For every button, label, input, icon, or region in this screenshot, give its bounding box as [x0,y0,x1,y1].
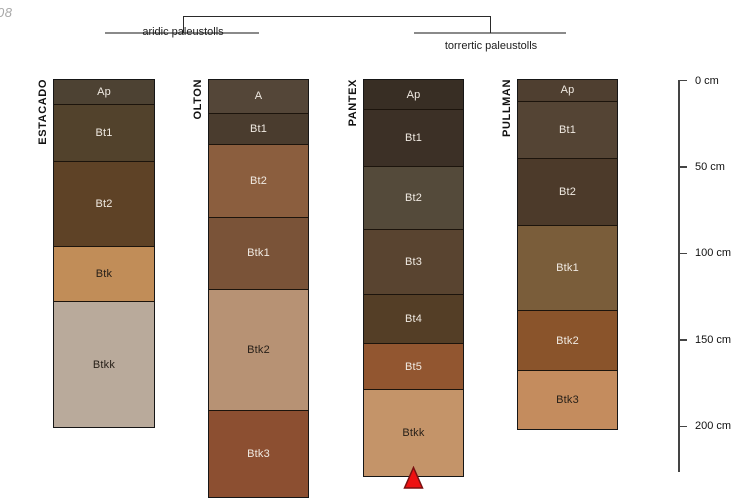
horizon-label: Btk1 [247,247,270,259]
depth-axis-line [678,80,680,472]
profile-column-pantex: ApBt1Bt2Bt3Bt4Bt5Btkk [363,79,464,477]
marker-triangle-shape [405,468,423,489]
horizon-label: Bt2 [95,198,112,210]
horizon-pullman-ap: Ap [518,80,617,101]
horizon-pantex-bt4: Bt4 [364,294,463,342]
horizon-olton-btk2: Btk2 [209,289,308,410]
horizon-label: Ap [407,89,421,101]
horizon-label: Bt5 [405,361,422,373]
horizon-pantex-bt1: Bt1 [364,109,463,166]
horizon-olton-btk1: Btk1 [209,217,308,290]
horizon-estacado-btk: Btk [54,246,154,301]
profile-name-olton: OLTON [192,79,204,119]
horizon-pantex-bt3: Bt3 [364,229,463,295]
horizon-olton-btk3: Btk3 [209,410,308,496]
horizon-label: Bt2 [405,192,422,204]
soil-profile-diagram: 08 aridic paleustolls torrertic paleusto… [0,0,750,500]
horizon-label: Bt1 [559,124,576,136]
horizon-label: Bt4 [405,313,422,325]
horizon-pullman-btk1: Btk1 [518,225,617,310]
horizon-label: Bt2 [559,186,576,198]
horizon-pantex-bt2: Bt2 [364,166,463,228]
group-label-aridic: aridic paleustolls [141,26,225,38]
horizon-pullman-btk3: Btk3 [518,370,617,429]
depth-tick-label: 200 cm [695,419,750,433]
horizon-olton-bt1: Bt1 [209,113,308,144]
horizon-estacado-ap: Ap [54,80,154,104]
bracket-top-line [183,16,491,17]
group-label-torrertic: torrertic paleustolls [440,40,542,52]
depth-tick-label: 100 cm [695,246,750,260]
horizon-pullman-bt2: Bt2 [518,158,617,225]
depth-tick-label: 0 cm [695,74,750,88]
profile-name-pantex: PANTEX [347,79,359,126]
profile-column-olton: ABt1Bt2Btk1Btk2Btk3 [208,79,309,498]
horizon-estacado-bt2: Bt2 [54,161,154,246]
depth-tick [678,339,687,341]
horizon-label: Btk2 [556,335,579,347]
horizon-label: Bt1 [95,127,112,139]
depth-tick-label: 50 cm [695,160,750,174]
horizon-label: Ap [561,84,575,96]
profile-name-estacado: ESTACADO [37,79,49,145]
horizon-pullman-bt1: Bt1 [518,101,617,158]
horizon-label: Bt3 [405,256,422,268]
horizon-label: Bt1 [250,123,267,135]
profile-name-pullman: PULLMAN [501,79,513,137]
depth-tick [678,80,687,82]
horizon-label: A [255,90,263,102]
depth-tick [678,166,687,168]
horizon-pantex-btkk: Btkk [364,389,463,475]
horizon-olton-a: A [209,80,308,113]
horizon-estacado-btkk: Btkk [54,301,154,427]
horizon-label: Btk2 [247,344,270,356]
horizon-pantex-ap: Ap [364,80,463,109]
depth-tick [678,426,687,428]
horizon-label: Btk1 [556,262,579,274]
profile-column-pullman: ApBt1Bt2Btk1Btk2Btk3 [517,79,618,430]
horizon-olton-bt2: Bt2 [209,144,308,217]
horizon-estacado-bt1: Bt1 [54,104,154,161]
horizon-pullman-btk2: Btk2 [518,310,617,371]
depth-tick [678,253,687,255]
horizon-label: Btk3 [556,394,579,406]
marker-triangle-icon [403,466,424,490]
horizon-label: Btk3 [247,448,270,460]
bracket-right-drop [490,16,491,33]
horizon-label: Bt2 [250,175,267,187]
watermark-text: 08 [0,5,12,20]
depth-tick-label: 150 cm [695,333,750,347]
horizon-label: Btk [96,268,113,280]
horizon-label: Btkk [402,427,424,439]
profile-column-estacado: ApBt1Bt2BtkBtkk [53,79,155,428]
horizon-pantex-bt5: Bt5 [364,343,463,390]
horizon-label: Btkk [93,359,115,371]
horizon-label: Bt1 [405,132,422,144]
horizon-label: Ap [97,86,111,98]
